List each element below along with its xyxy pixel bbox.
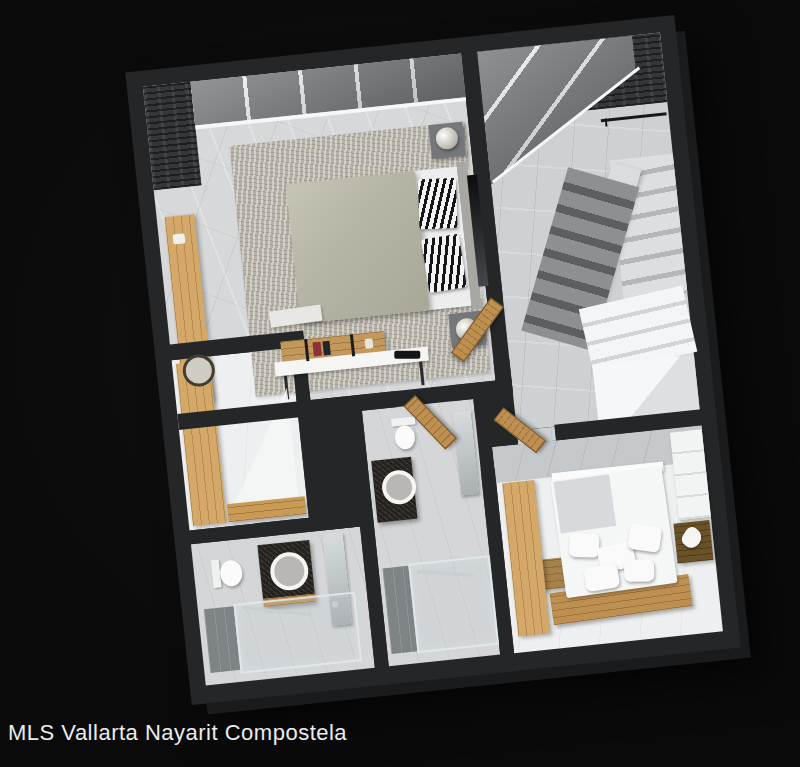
desk-book-red — [313, 342, 322, 357]
render-canvas: MLS Vallarta Nayarit Compostela — [0, 0, 800, 767]
desk-phone — [394, 351, 420, 359]
bed2-duvet-fold — [554, 474, 617, 533]
wall-bath2-bedroom2-upper — [473, 398, 489, 418]
zebra-pillow-bottom — [421, 234, 467, 293]
desk-perfume — [364, 338, 373, 349]
bed2-pillow-1 — [569, 533, 600, 558]
watermark-caption: MLS Vallarta Nayarit Compostela — [8, 720, 347, 746]
desk-book-dark — [322, 341, 330, 356]
floor-plan — [125, 15, 740, 705]
bed2-pillow-3 — [627, 523, 662, 553]
zebra-pillow-top — [418, 178, 458, 229]
bench-candles — [172, 233, 185, 244]
master-bed-duvet — [286, 171, 430, 324]
bath1-shower-glass — [233, 591, 362, 673]
bed2-pillow-5 — [624, 559, 654, 582]
